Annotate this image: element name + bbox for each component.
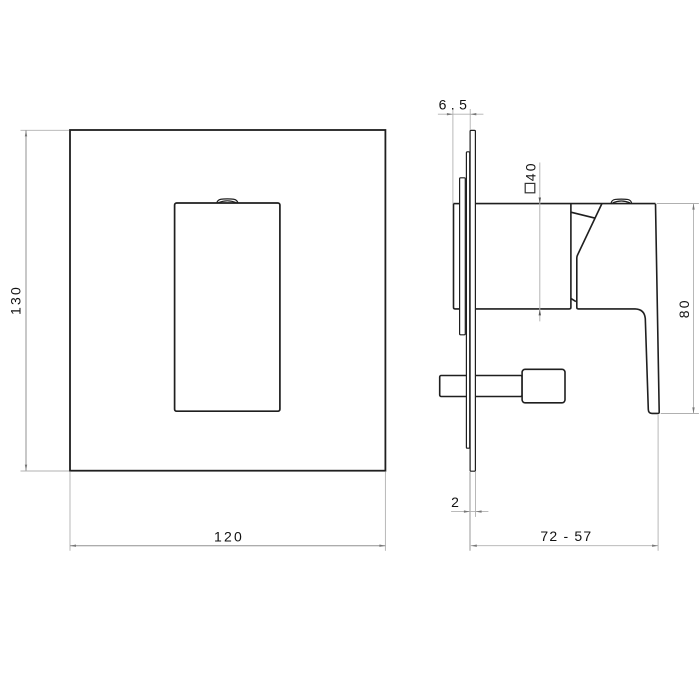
svg-text:130: 130 [8, 285, 24, 315]
svg-text:120: 120 [214, 529, 244, 545]
svg-text:72 - 57: 72 - 57 [540, 528, 592, 544]
svg-text:2: 2 [451, 494, 459, 510]
svg-text:80: 80 [676, 298, 692, 318]
svg-text:40: 40 [522, 161, 538, 181]
svg-text:6.5: 6.5 [439, 96, 472, 112]
